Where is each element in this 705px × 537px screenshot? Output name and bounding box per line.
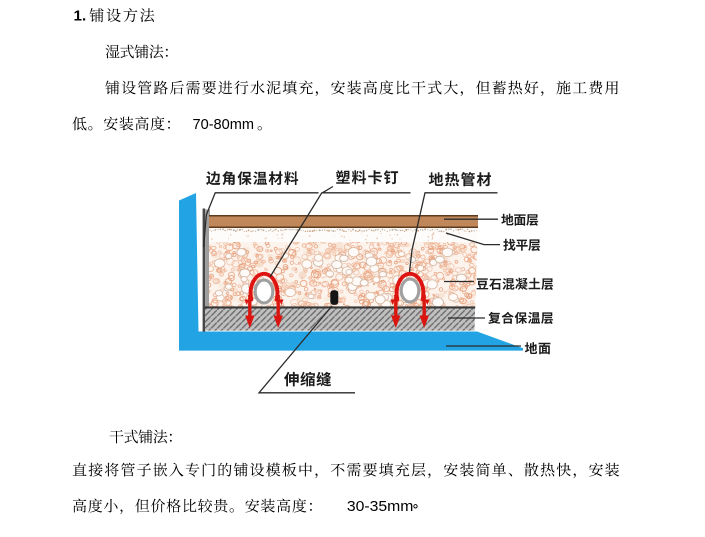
svg-text:30-35mm: 30-35mm [347, 498, 414, 515]
svg-text:70-80mm: 70-80mm [193, 116, 255, 133]
svg-text:1.: 1. [74, 8, 87, 25]
